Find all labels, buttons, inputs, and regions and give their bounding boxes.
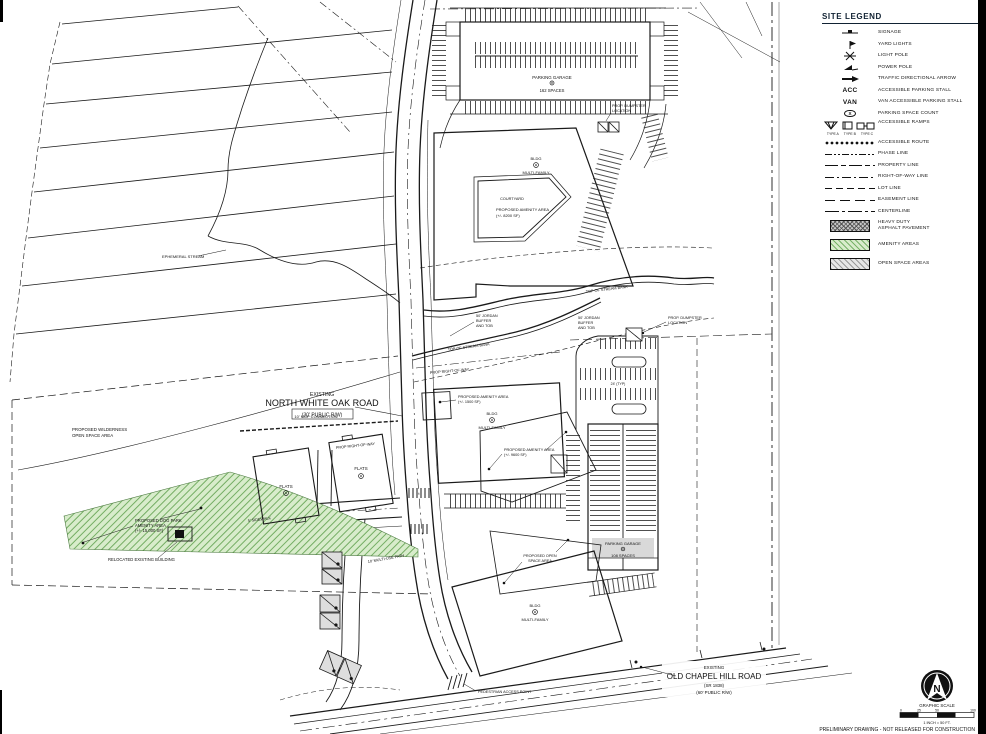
legend-label: RIGHT-OF-WAY LINE bbox=[878, 174, 928, 180]
legend-label: CENTERLINE bbox=[878, 209, 910, 215]
dumpster-pad-top bbox=[598, 122, 619, 132]
legend-item-property-line: PROPERTY LINE bbox=[822, 161, 978, 171]
svg-text:MULTI-FAMILY: MULTI-FAMILY bbox=[523, 170, 550, 175]
legend-label: TRAFFIC DIRECTIONAL ARROW bbox=[878, 76, 956, 82]
svg-text:(+/- 9600 SF): (+/- 9600 SF) bbox=[504, 453, 527, 457]
parking-garage-top: PARKING GARAGE 162 SPACES PROP. DUMPSTER… bbox=[432, 8, 678, 168]
legend-item-van: VAN VAN ACCESSIBLE PARKING STALL bbox=[822, 97, 978, 107]
svg-text:MULTI-FAMILY: MULTI-FAMILY bbox=[479, 425, 506, 430]
pedestrian-access: PEDESTRIAN ACCESS POINT bbox=[448, 673, 532, 694]
north-arrow: N bbox=[921, 670, 953, 702]
graphic-scale: GRAPHIC SCALE 0 25 50 100 1 INCH = 50 FT… bbox=[900, 703, 976, 725]
legend-item-traffic-arrow: TRAFFIC DIRECTIONAL ARROW bbox=[822, 74, 978, 84]
legend-label: OPEN SPACE AREAS bbox=[878, 261, 929, 267]
legend-label: ACCESSIBLE ROUTE bbox=[878, 140, 929, 146]
svg-text:10' MUP CONNECTION: 10' MUP CONNECTION bbox=[294, 414, 337, 419]
accessible-route-symbol bbox=[822, 140, 878, 146]
legend-label: HEAVY DUTY ASPHALT PAVEMENT bbox=[878, 220, 930, 232]
west-lot-lines bbox=[10, 2, 396, 382]
parking-garage-top-label: PARKING GARAGE 162 SPACES bbox=[532, 75, 572, 93]
svg-text:50' JORDAN: 50' JORDAN bbox=[476, 314, 498, 318]
jordan-buffer-label: 50' JORDAN BUFFER AND TOB 50' JORDAN BUF… bbox=[450, 314, 600, 336]
legend-item-yard-lights: YARD LIGHTS bbox=[822, 40, 978, 50]
old-chapel-hill-road: EXISTING OLD CHAPEL HILL ROAD (SR 1838) … bbox=[280, 642, 852, 734]
signage-icon bbox=[822, 28, 878, 38]
yard-light-icon bbox=[822, 40, 878, 50]
legend-item-power-pole: POWER POLE bbox=[822, 63, 978, 73]
svg-text:25: 25 bbox=[917, 709, 921, 713]
och-road-label: EXISTING OLD CHAPEL HILL ROAD (SR 1838) … bbox=[640, 661, 766, 697]
svg-text:GRAPHIC SCALE: GRAPHIC SCALE bbox=[919, 703, 955, 708]
legend-item-phase-line: PHASE LINE bbox=[822, 149, 978, 159]
crosswalk bbox=[409, 488, 429, 534]
building-upper-multifamily: BLDG MULTI-FAMILY COURTYARD PROPOSED AME… bbox=[434, 128, 633, 300]
building-bottom-multifamily: PROPOSED OPEN SPACE AREA BLDG MULTI-FAMI… bbox=[448, 531, 622, 694]
dog-park-area: PROPOSED DOG PARK AMENITY AREA (+/- 15,0… bbox=[64, 472, 418, 562]
ephemeral-stream-label: EPHEMERAL STREAM bbox=[162, 254, 204, 259]
flats-label: FLATS bbox=[279, 484, 292, 489]
svg-text:BLDG: BLDG bbox=[530, 603, 541, 608]
svg-text:RELOCATED EXISTING BUILDING: RELOCATED EXISTING BUILDING bbox=[108, 557, 175, 562]
flats-label: FLATS bbox=[354, 466, 367, 471]
svg-text:NORTH WHITE OAK ROAD: NORTH WHITE OAK ROAD bbox=[265, 398, 379, 408]
amenity-1500-label: PROPOSED AMENITY AREA (+/- 1500 SF) bbox=[439, 395, 509, 404]
accessible-ramp-icons: TYPE A TYPE B TYPE C bbox=[822, 120, 878, 136]
legend-item-space-count: X PARKING SPACE COUNT bbox=[822, 109, 978, 119]
parking-island bbox=[612, 404, 646, 414]
svg-text:BLDG: BLDG bbox=[487, 411, 498, 416]
legend-label: ACCESSIBLE RAMPS bbox=[878, 120, 930, 126]
space-count-symbol: X bbox=[822, 110, 878, 117]
svg-text:PROPOSED OPEN: PROPOSED OPEN bbox=[523, 554, 557, 558]
centerline-symbol bbox=[822, 209, 878, 214]
easement-line-symbol bbox=[822, 198, 878, 203]
traffic-arrow-icon bbox=[822, 74, 878, 84]
legend-label: PROPERTY LINE bbox=[878, 163, 919, 169]
site-legend: SITE LEGEND SIGNAGE YARD LIGHTS LIGHT PO… bbox=[822, 12, 978, 275]
svg-text:108 SPACES: 108 SPACES bbox=[611, 553, 635, 558]
svg-text:LOCATION: LOCATION bbox=[668, 321, 687, 325]
svg-text:PROP. DUMPSTER: PROP. DUMPSTER bbox=[668, 316, 702, 320]
dumpster-pad-mid bbox=[626, 328, 642, 341]
asphalt-swatch bbox=[822, 220, 878, 232]
legend-item-row-line: RIGHT-OF-WAY LINE bbox=[822, 172, 978, 182]
prop-row-label: PROP RIGHT-OF-WAY bbox=[336, 442, 376, 450]
svg-text:BUFFER: BUFFER bbox=[578, 321, 593, 325]
row-line-symbol bbox=[822, 175, 878, 180]
wilderness-label: OPEN SPACE AREA bbox=[72, 433, 113, 438]
svg-text:50' JORDAN: 50' JORDAN bbox=[578, 316, 600, 320]
parking-island bbox=[612, 357, 646, 367]
svg-text:OLD CHAPEL HILL ROAD: OLD CHAPEL HILL ROAD bbox=[667, 672, 762, 681]
footer-note: PRELIMINARY DRAWING - NOT RELEASED FOR C… bbox=[819, 727, 975, 733]
legend-title: SITE LEGEND bbox=[822, 12, 978, 24]
courtyard-label: COURTYARD bbox=[500, 197, 524, 201]
prop-row-label: PROP RIGHT-OF-WAY bbox=[430, 368, 470, 375]
legend-label: SIGNAGE bbox=[878, 30, 901, 36]
amenity-9600-label: PROPOSED AMENITY AREA (+/- 9600 SF) bbox=[488, 431, 568, 471]
svg-text:(60' PUBLIC R/W): (60' PUBLIC R/W) bbox=[696, 690, 732, 695]
legend-label: POWER POLE bbox=[878, 65, 912, 71]
light-pole-icon bbox=[822, 51, 878, 61]
dumpster-label-mid: PROP. DUMPSTER LOCATION bbox=[642, 316, 702, 334]
svg-text:N: N bbox=[933, 684, 940, 695]
legend-label: PARKING SPACE COUNT bbox=[878, 111, 939, 117]
legend-item-open-space: OPEN SPACE AREAS bbox=[822, 255, 978, 273]
legend-label: LIGHT POLE bbox=[878, 53, 908, 59]
svg-text:EXISTING: EXISTING bbox=[704, 665, 725, 670]
legend-item-lot-line: LOT LINE bbox=[822, 184, 978, 194]
svg-text:(+/- 1500 SF): (+/- 1500 SF) bbox=[458, 400, 481, 404]
svg-text:PROPOSED AMENITY AREA: PROPOSED AMENITY AREA bbox=[458, 395, 509, 399]
legend-item-acc: ACC ACCESSIBLE PARKING STALL bbox=[822, 86, 978, 96]
amenity-swatch bbox=[822, 239, 878, 251]
acc-symbol: ACC bbox=[822, 87, 878, 94]
legend-item-amenity: AMENITY AREAS bbox=[822, 236, 978, 254]
svg-text:100: 100 bbox=[970, 709, 976, 713]
legend-label: PHASE LINE bbox=[878, 151, 908, 157]
svg-text:BLDG: BLDG bbox=[531, 156, 542, 161]
garage-units bbox=[319, 552, 361, 684]
svg-text:LOCATION: LOCATION bbox=[612, 109, 631, 113]
legend-item-centerline: CENTERLINE bbox=[822, 207, 978, 217]
svg-text:PROPOSED AMENITY AREA: PROPOSED AMENITY AREA bbox=[496, 207, 549, 212]
wilderness-label: PROPOSED WILDERNESS bbox=[72, 427, 127, 432]
svg-text:AND TOB: AND TOB bbox=[578, 326, 595, 330]
legend-item-ramps: TYPE A TYPE B TYPE C ACCESSIBLE RAMPS bbox=[822, 120, 978, 136]
legend-item-asphalt: HEAVY DUTY ASPHALT PAVEMENT bbox=[822, 218, 978, 234]
legend-item-accessible-route: ACCESSIBLE ROUTE bbox=[822, 138, 978, 148]
svg-text:(SR 1838): (SR 1838) bbox=[704, 683, 725, 688]
svg-text:AND TOB: AND TOB bbox=[476, 324, 493, 328]
van-symbol: VAN bbox=[822, 99, 878, 106]
parking-garage-right-label: PARKING GARAGE 108 SPACES bbox=[592, 538, 654, 558]
svg-text:TOP OF STREAM BANK: TOP OF STREAM BANK bbox=[448, 342, 491, 352]
svg-text:PARKING GARAGE: PARKING GARAGE bbox=[532, 75, 572, 80]
legend-item-easement-line: EASEMENT LINE bbox=[822, 195, 978, 205]
open-space-label: PROPOSED OPEN SPACE AREA bbox=[503, 539, 570, 585]
svg-text:1 INCH = 50 FT.: 1 INCH = 50 FT. bbox=[923, 721, 950, 725]
legend-label: AMENITY AREAS bbox=[878, 242, 919, 248]
svg-text:0: 0 bbox=[900, 709, 902, 713]
legend-label: LOT LINE bbox=[878, 186, 901, 192]
svg-text:50: 50 bbox=[935, 709, 939, 713]
svg-text:(+/- 8200 SF): (+/- 8200 SF) bbox=[496, 213, 520, 218]
legend-label: ACCESSIBLE PARKING STALL bbox=[878, 88, 951, 94]
phase-line-symbol bbox=[822, 152, 878, 157]
svg-text:PARKING GARAGE: PARKING GARAGE bbox=[605, 541, 641, 546]
legend-label: EASEMENT LINE bbox=[878, 197, 919, 203]
svg-text:BUFFER: BUFFER bbox=[476, 319, 491, 323]
power-pole-icon bbox=[822, 63, 878, 73]
north-white-oak-road: EXISTING NORTH WHITE OAK ROAD (30' PUBLI… bbox=[240, 0, 472, 679]
ramp-type-labels: TYPE A TYPE B TYPE C bbox=[827, 132, 873, 136]
dim-label: 24' (TYP) bbox=[611, 382, 626, 386]
open-space-swatch bbox=[822, 258, 878, 270]
lot-line-symbol bbox=[822, 186, 878, 191]
svg-text:MULTI-FAMILY: MULTI-FAMILY bbox=[522, 617, 549, 622]
legend-item-signage: SIGNAGE bbox=[822, 28, 978, 38]
site-plan-sheet: PROPOSED WILDERNESS OPEN SPACE AREA EPHE… bbox=[0, 0, 986, 734]
property-line-symbol bbox=[822, 163, 878, 168]
mup-connection: 10' MUP CONNECTION bbox=[240, 414, 398, 431]
svg-text:162 SPACES: 162 SPACES bbox=[540, 88, 565, 93]
legend-label: VAN ACCESSIBLE PARKING STALL bbox=[878, 99, 963, 105]
legend-item-light-pole: LIGHT POLE bbox=[822, 51, 978, 61]
svg-text:(+/- 15,000 SF): (+/- 15,000 SF) bbox=[135, 528, 164, 533]
legend-label: YARD LIGHTS bbox=[878, 42, 912, 48]
svg-text:PROP. DUMPSTER: PROP. DUMPSTER bbox=[612, 104, 646, 108]
